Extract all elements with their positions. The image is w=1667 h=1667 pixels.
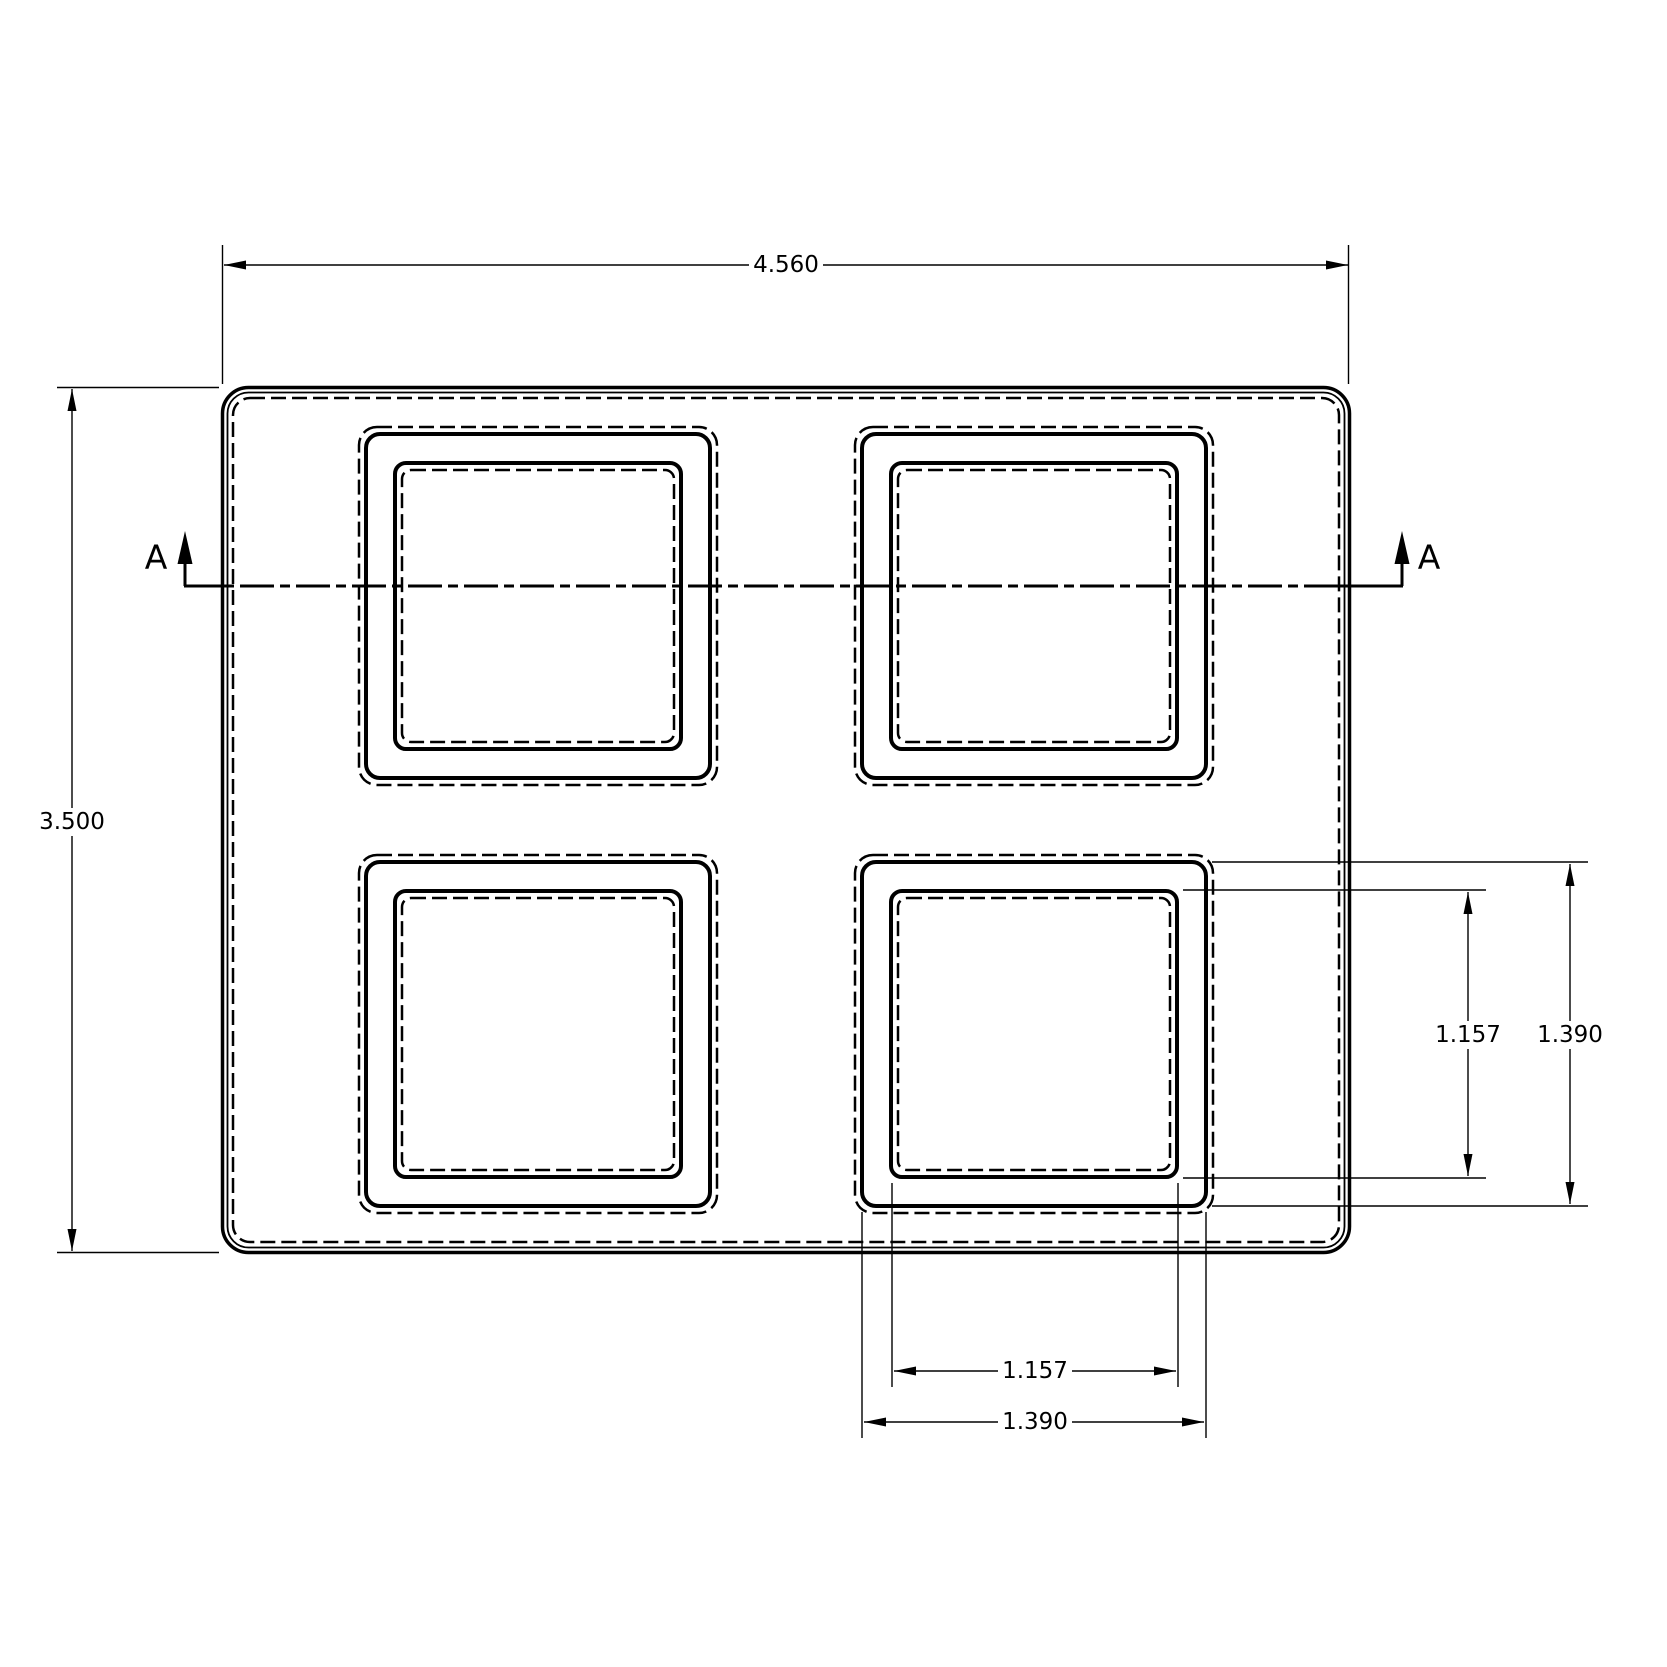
- drawing-canvas: A A 4.560 3.500: [0, 0, 1667, 1667]
- pocket-opening-height-dimension-text: 1.157: [1435, 1022, 1501, 1048]
- dimension-arrow: [1326, 261, 1348, 270]
- section-arrow-left-head: [178, 531, 193, 564]
- dimension-overall-height: 3.500: [35, 388, 219, 1253]
- dimension-pocket-outer-width: 1.390: [862, 1212, 1206, 1438]
- dimension-arrow: [224, 261, 246, 270]
- dimension-arrow: [1464, 1154, 1473, 1176]
- dimension-arrow: [1154, 1367, 1176, 1376]
- pocket-bottom-left: [359, 855, 717, 1213]
- pocket-opening-width-dimension-text: 1.157: [1002, 1358, 1068, 1384]
- dimension-arrow: [1464, 892, 1473, 914]
- overall-width-dimension-text: 4.560: [753, 252, 819, 278]
- part-outline: [223, 388, 1350, 1253]
- pocket-top-right: [855, 427, 1213, 785]
- cad-engineering-drawing: A A 4.560 3.500: [0, 0, 1667, 1667]
- dimension-arrow: [1182, 1418, 1204, 1427]
- dimension-arrow: [864, 1418, 886, 1427]
- dimension-overall-width: 4.560: [223, 245, 1349, 384]
- dimension-arrow: [1566, 1182, 1575, 1204]
- pocket-bottom-right: [855, 855, 1213, 1213]
- part-rim-hidden-edge: [233, 398, 1339, 1242]
- dimension-arrow: [68, 389, 77, 411]
- part-outer-edge: [223, 388, 1350, 1253]
- dimension-arrow: [894, 1367, 916, 1376]
- dimension-arrow: [68, 1229, 77, 1251]
- section-label-right: A: [1418, 538, 1441, 577]
- dimension-pocket-outer-height: 1.390: [1212, 862, 1607, 1206]
- pocket-top-left: [359, 427, 717, 785]
- pocket-outer-width-dimension-text: 1.390: [1002, 1409, 1068, 1435]
- dimension-arrow: [1566, 864, 1575, 886]
- section-arrow-right-head: [1395, 531, 1410, 564]
- overall-height-dimension-text: 3.500: [39, 809, 105, 835]
- section-line-group: A A: [145, 531, 1441, 586]
- section-label-left: A: [145, 538, 168, 577]
- pocket-outer-height-dimension-text: 1.390: [1537, 1022, 1603, 1048]
- pockets: [359, 427, 1213, 1213]
